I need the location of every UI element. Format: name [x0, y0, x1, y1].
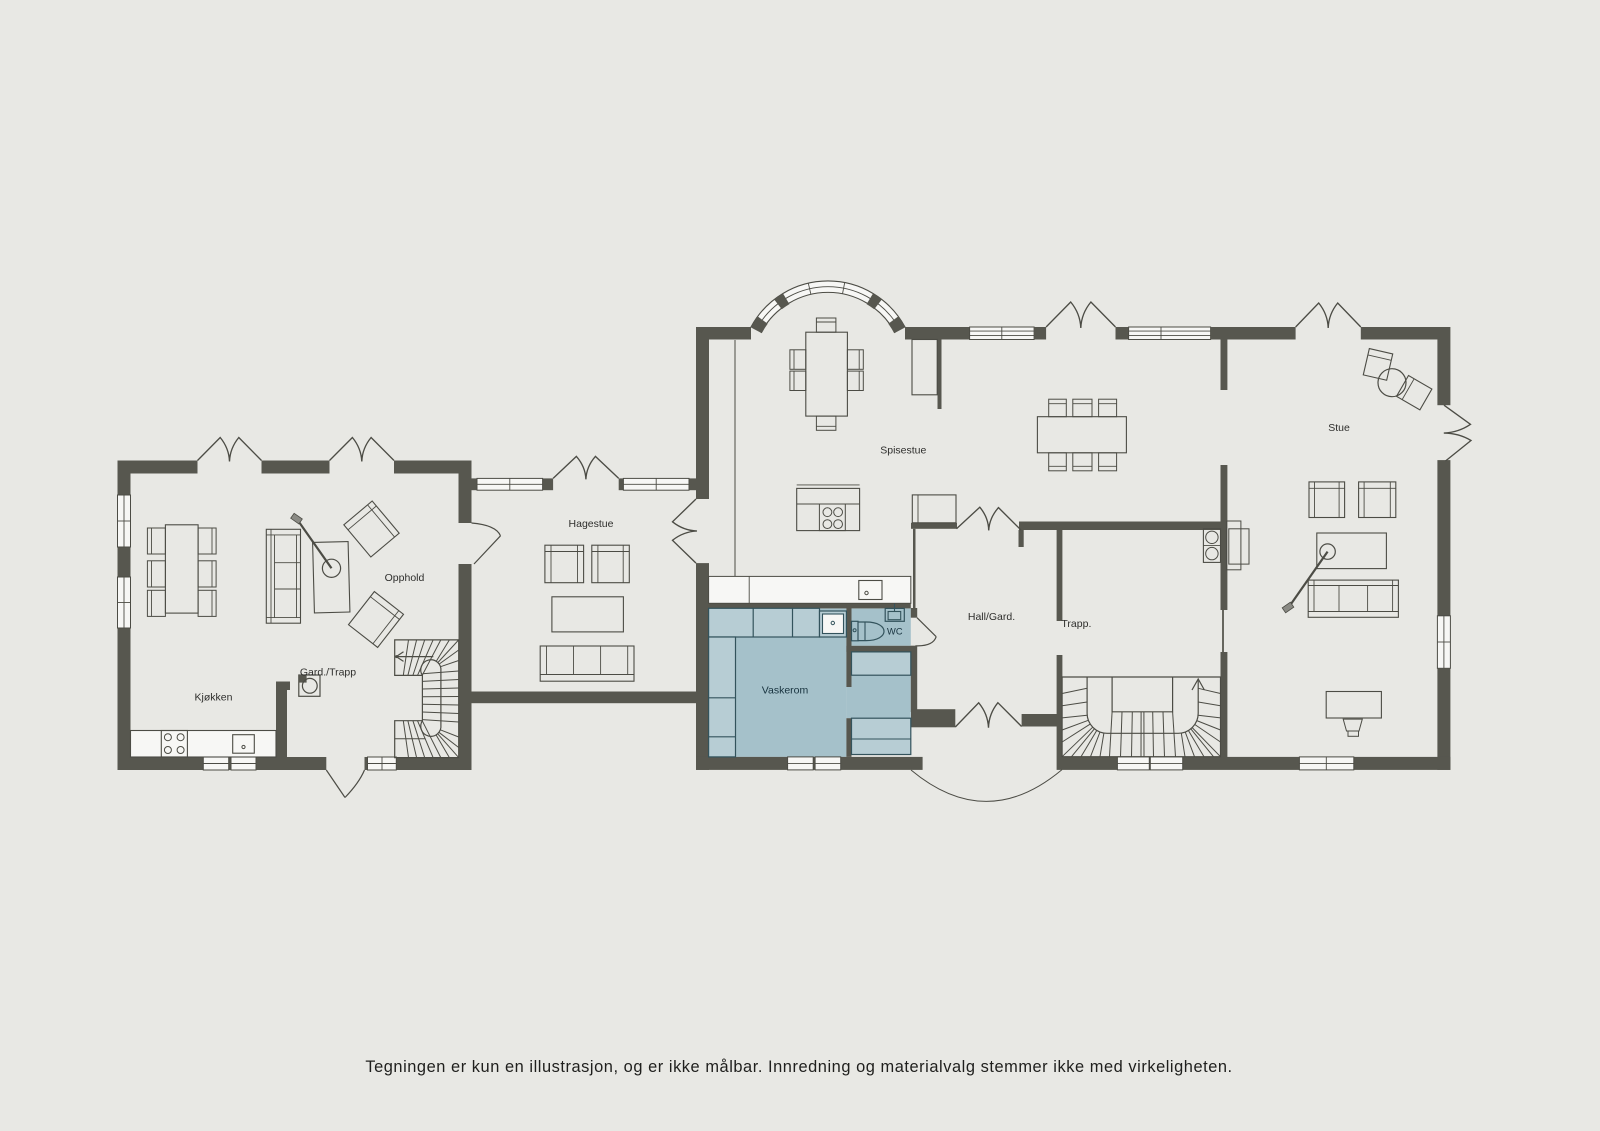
svg-text:Vaskerom: Vaskerom — [762, 685, 809, 697]
svg-text:Kjøkken: Kjøkken — [195, 692, 233, 704]
svg-text:Hagestue: Hagestue — [569, 518, 614, 530]
svg-text:Gard./Trapp: Gard./Trapp — [300, 667, 356, 679]
svg-text:Stue: Stue — [1328, 422, 1350, 434]
svg-text:Hall/Gard.: Hall/Gard. — [968, 611, 1015, 623]
svg-text:Trapp.: Trapp. — [1061, 618, 1091, 630]
svg-text:WC: WC — [887, 626, 903, 636]
svg-text:Opphold: Opphold — [385, 572, 425, 584]
svg-text:Spisestue: Spisestue — [880, 445, 926, 457]
svg-text:Tegningen er kun en illustrasj: Tegningen er kun en illustrasjon, og er … — [365, 1058, 1232, 1076]
